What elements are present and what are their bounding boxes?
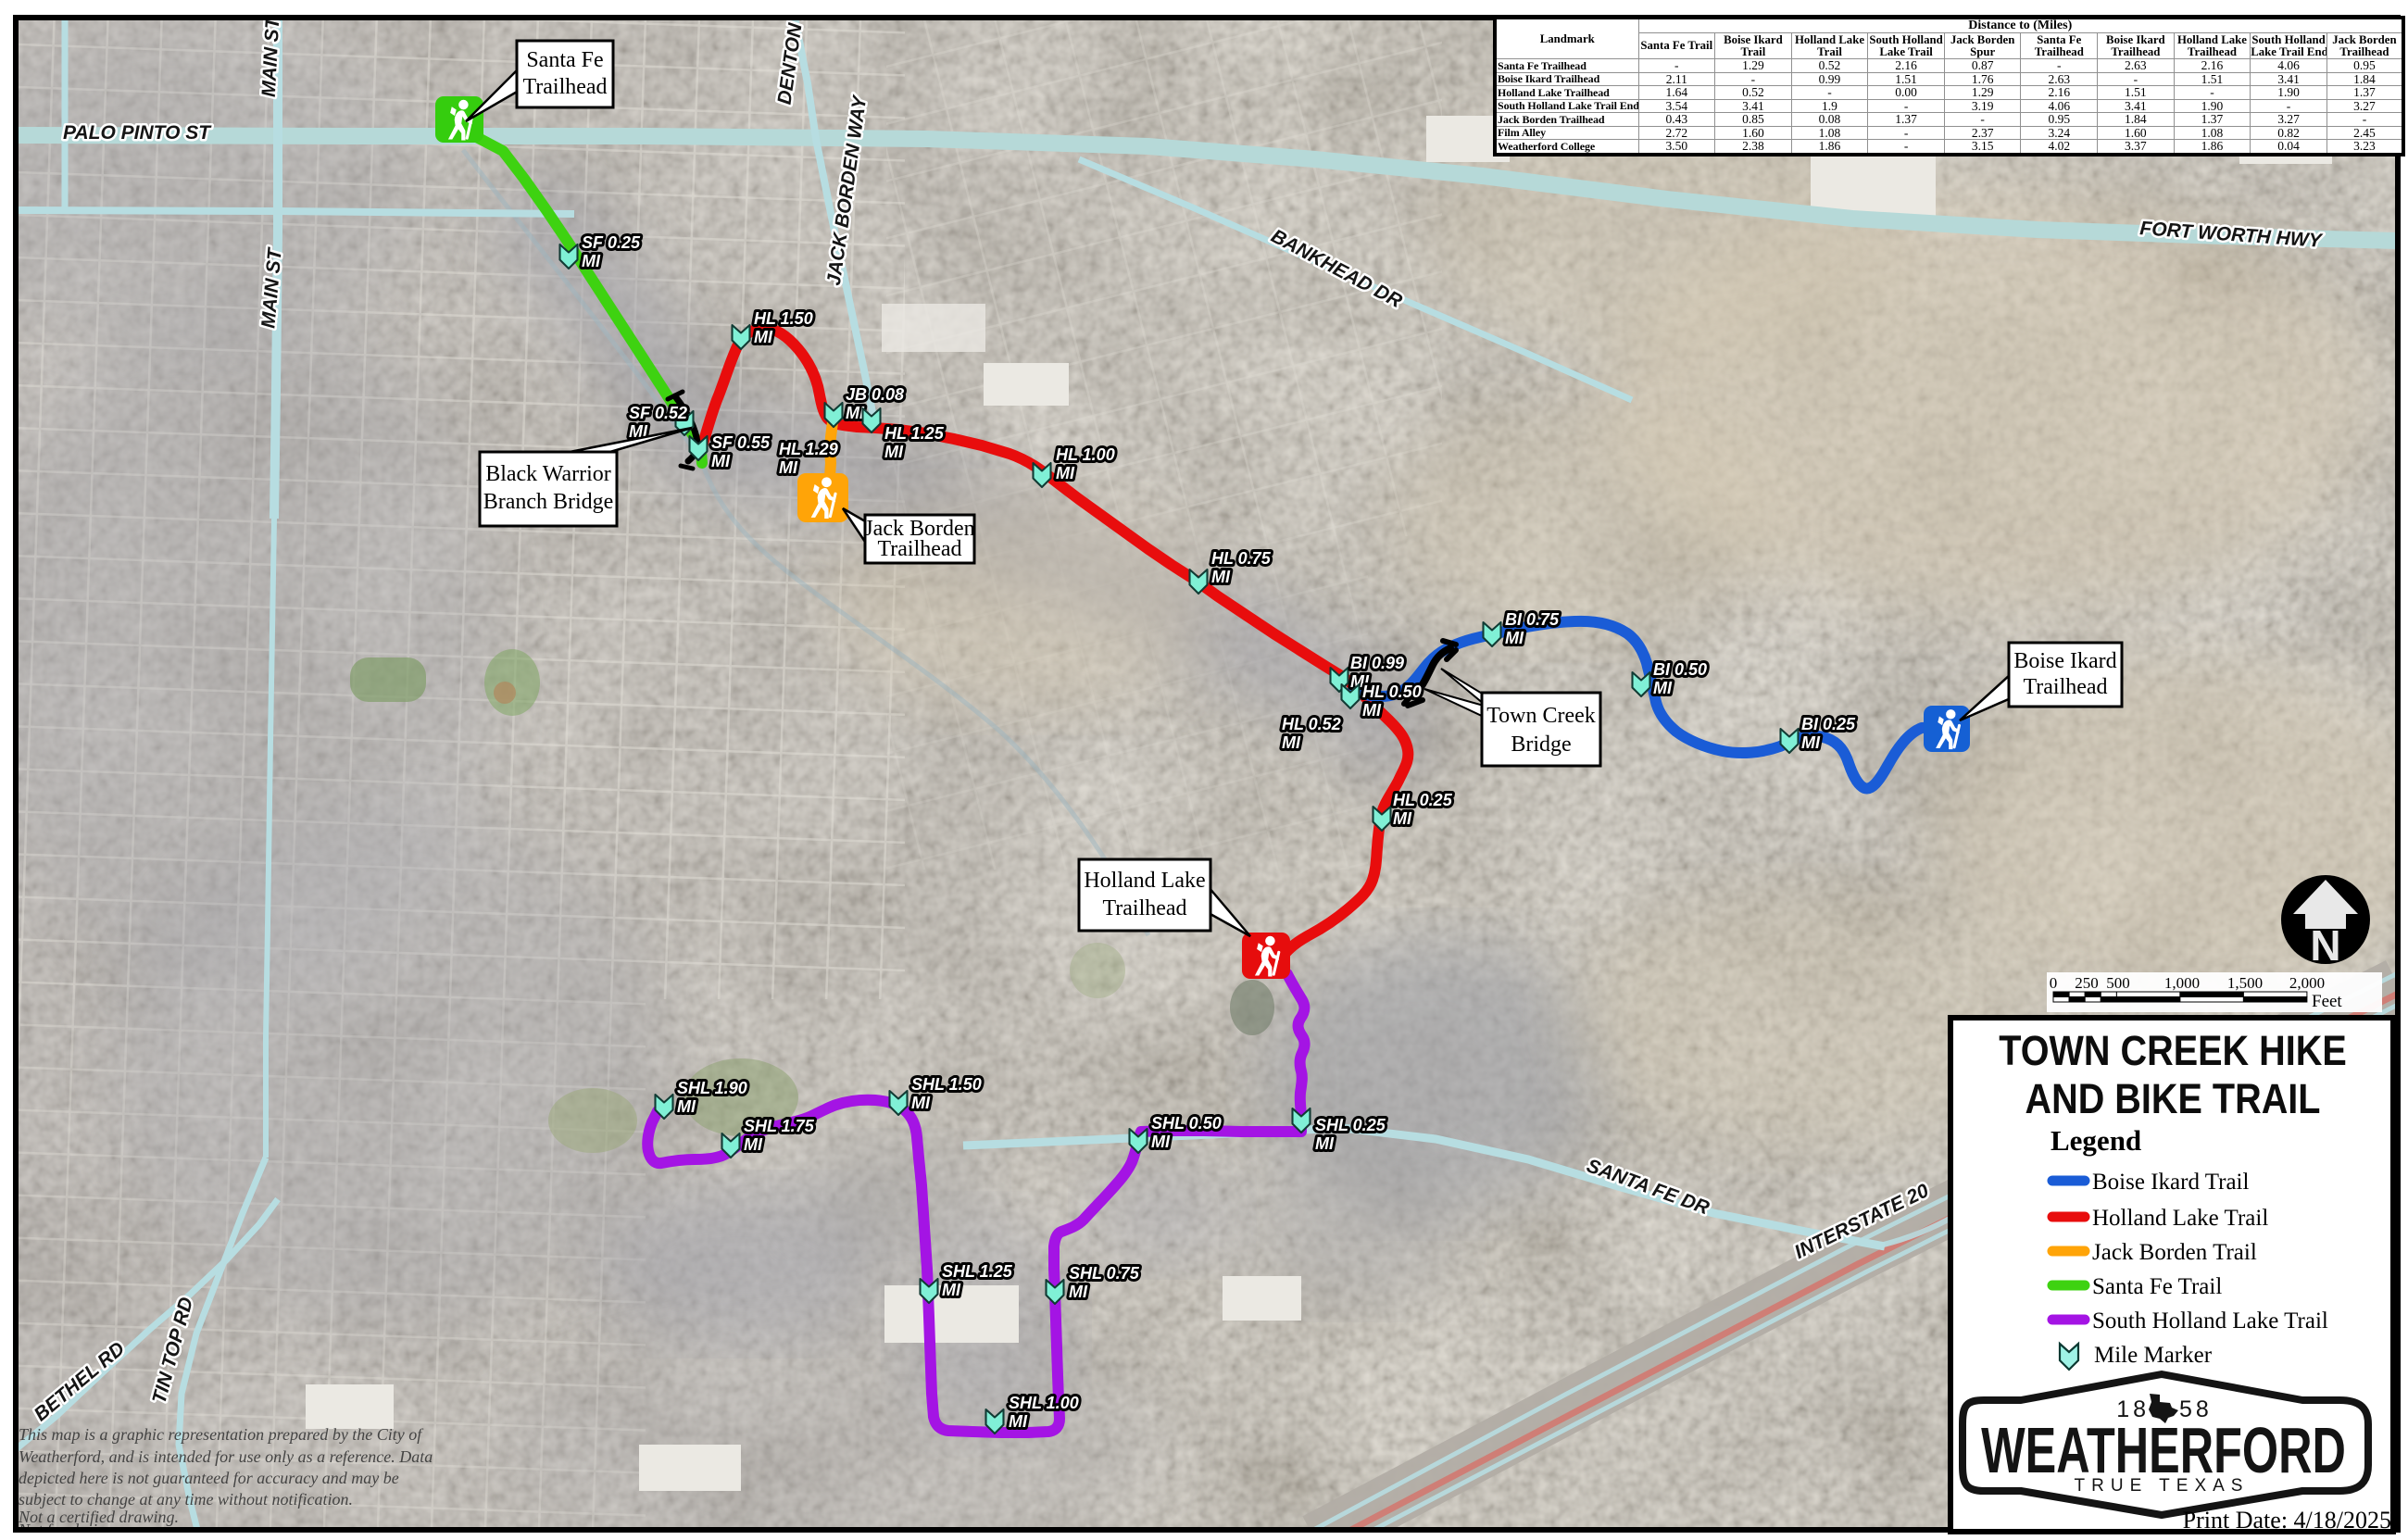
svg-text:HL 0.50: HL 0.50 — [1362, 682, 1422, 701]
svg-text:SHL 1.50: SHL 1.50 — [911, 1075, 982, 1094]
svg-text:Santa Fe Trail: Santa Fe Trail — [2092, 1274, 2222, 1299]
svg-text:MI: MI — [1069, 1283, 1088, 1301]
svg-text:SF 0.25: SF 0.25 — [582, 233, 641, 252]
svg-text:MI: MI — [942, 1281, 961, 1299]
svg-text:HL 0.25: HL 0.25 — [1393, 791, 1453, 809]
svg-text:MI: MI — [1151, 1133, 1171, 1151]
svg-text:HL 1.50: HL 1.50 — [754, 309, 813, 328]
svg-text:MI: MI — [1211, 568, 1231, 586]
svg-text:Santa Fe: Santa Fe — [526, 48, 603, 72]
svg-text:SHL 1.90: SHL 1.90 — [677, 1079, 747, 1097]
svg-text:Holland Lake Trail: Holland Lake Trail — [2092, 1206, 2268, 1231]
svg-text:Boise Ikard: Boise Ikard — [2013, 649, 2116, 673]
svg-text:Trailhead: Trailhead — [877, 537, 961, 561]
svg-text:1,500: 1,500 — [2227, 974, 2263, 992]
svg-text:Weatherford, and is intended f: Weatherford, and is intended for use onl… — [19, 1447, 433, 1466]
svg-text:HL 1.25: HL 1.25 — [884, 424, 945, 443]
svg-text:Branch Bridge: Branch Bridge — [483, 490, 614, 514]
svg-text:This map is a graphic represen: This map is a graphic representation pre… — [19, 1425, 424, 1444]
svg-text:MI: MI — [779, 458, 798, 477]
svg-text:MI: MI — [1282, 733, 1301, 752]
svg-text:Town Creek: Town Creek — [1486, 704, 1596, 728]
svg-text:Boise Ikard Trail: Boise Ikard Trail — [2092, 1170, 2250, 1195]
svg-text:Black Warrior: Black Warrior — [485, 462, 611, 486]
svg-text:HL 0.52: HL 0.52 — [1282, 715, 1341, 733]
svg-text:TRUE TEXAS: TRUE TEXAS — [2075, 1476, 2250, 1496]
svg-text:HL 0.75: HL 0.75 — [1211, 549, 1272, 568]
svg-text:Mile Marker: Mile Marker — [2094, 1343, 2213, 1368]
svg-text:Trailhead: Trailhead — [522, 75, 607, 99]
svg-text:PALO PINTO ST: PALO PINTO ST — [63, 122, 212, 144]
svg-text:SHL 1.25: SHL 1.25 — [942, 1262, 1013, 1281]
svg-text:MI: MI — [582, 252, 601, 270]
svg-text:Jack Borden Trail: Jack Borden Trail — [2092, 1240, 2257, 1265]
svg-text:SHL 0.25: SHL 0.25 — [1315, 1116, 1386, 1134]
svg-text:Bridge: Bridge — [1511, 732, 1571, 757]
svg-text:MI: MI — [884, 443, 904, 461]
svg-text:SHL 1.75: SHL 1.75 — [744, 1117, 815, 1135]
svg-text:HL 1.00: HL 1.00 — [1056, 445, 1115, 464]
svg-text:SF 0.52: SF 0.52 — [629, 404, 687, 422]
svg-text:Print Date: 4/18/2025: Print Date: 4/18/2025 — [2183, 1507, 2391, 1531]
svg-text:Holland Lake: Holland Lake — [1084, 869, 1205, 893]
svg-text:MI: MI — [1801, 733, 1821, 752]
svg-text:BI 0.99: BI 0.99 — [1350, 654, 1404, 672]
svg-text:1,000: 1,000 — [2164, 974, 2200, 992]
svg-text:BI 0.25: BI 0.25 — [1801, 715, 1856, 733]
svg-text:Trailhead: Trailhead — [2023, 675, 2107, 699]
svg-text:MI: MI — [754, 328, 773, 346]
svg-text:0: 0 — [2050, 974, 2058, 992]
svg-text:N: N — [2310, 921, 2340, 970]
svg-text:MI: MI — [677, 1097, 696, 1116]
svg-text:BI 0.75: BI 0.75 — [1505, 610, 1560, 629]
svg-text:subject to change at any time: subject to change at any time without no… — [19, 1490, 353, 1509]
svg-text:2,000: 2,000 — [2289, 974, 2325, 992]
svg-text:HL 1.29: HL 1.29 — [779, 440, 838, 458]
svg-text:MI: MI — [911, 1094, 931, 1112]
svg-text:MAIN ST: MAIN ST — [258, 15, 284, 98]
svg-text:MI: MI — [1505, 629, 1524, 647]
svg-text:depicted here is not guarantee: depicted here is not guaranteed for accu… — [19, 1469, 399, 1487]
svg-text:SF 0.55: SF 0.55 — [711, 433, 771, 452]
svg-text:South Holland Lake Trail: South Holland Lake Trail — [2092, 1308, 2328, 1333]
svg-text:SHL 0.75: SHL 0.75 — [1069, 1264, 1140, 1283]
svg-text:MI: MI — [744, 1135, 763, 1154]
svg-text:JB 0.08: JB 0.08 — [846, 385, 904, 404]
svg-text:500: 500 — [2106, 974, 2130, 992]
svg-text:MI: MI — [1362, 701, 1382, 720]
svg-text:250: 250 — [2075, 974, 2099, 992]
svg-text:SHL 1.00: SHL 1.00 — [1009, 1394, 1079, 1412]
svg-text:MI: MI — [711, 452, 731, 470]
svg-text:BI 0.50: BI 0.50 — [1653, 660, 1707, 679]
svg-text:MI: MI — [1653, 679, 1673, 697]
svg-text:MI: MI — [1393, 809, 1412, 828]
svg-text:Feet: Feet — [2312, 992, 2342, 1011]
svg-text:MI: MI — [1056, 464, 1075, 482]
svg-text:SHL 0.50: SHL 0.50 — [1151, 1114, 1222, 1133]
svg-text:MI: MI — [1315, 1134, 1335, 1153]
svg-text:MI: MI — [1009, 1412, 1028, 1431]
svg-text:Trailhead: Trailhead — [1102, 896, 1186, 920]
